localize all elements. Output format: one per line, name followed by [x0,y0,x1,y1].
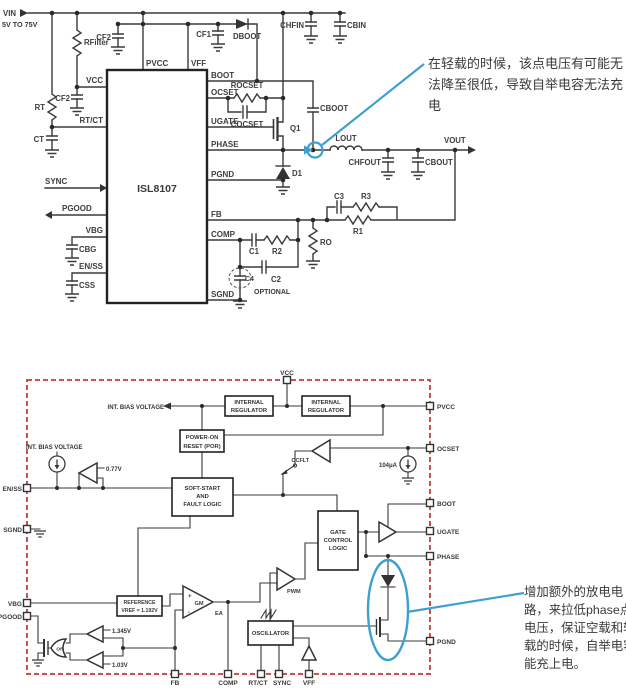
lower-threshold-label: 1.03V [112,663,128,669]
dboot-diode [236,19,248,29]
pin-pvcc: PVCC [146,59,168,68]
cbin-label: CBIN [347,21,366,30]
sawtooth-icon [261,610,276,618]
dboot-label: DBOOT [233,32,261,41]
ground-symbol [70,108,84,115]
ground-symbol [65,294,79,301]
soft-start-line3: FAULT LOGIC [183,502,222,508]
c1-cap [252,234,256,246]
blk-pin-boot: BOOT [437,501,456,508]
pin-square-pvcc [427,403,434,410]
int-bias-arrow [163,403,171,410]
r2-resistor [264,236,290,244]
c2-cap [262,261,266,273]
optional-label: OPTIONAL [254,289,291,296]
blk-pin-pgnd: PGND [437,639,456,646]
gate-control-line3: LOGIC [329,546,348,552]
chip-name: ISL8107 [137,183,177,195]
blk-pin-enss: EN/SS [2,486,22,493]
pin-square-pgnd [427,638,434,645]
discharge-diode [381,575,395,587]
bottom-note-line2: 路，来拉低phase点 [524,602,626,617]
top-note-line2: 法降至很低，导致自举电容无法充 [428,77,623,92]
bottom-note-line5: 能充上电。 [524,656,586,671]
cf2-vcc-cap [71,95,83,99]
enss-current-source [49,456,65,472]
pin-square-sgnd [24,526,31,533]
lout-label: LOUT [335,134,356,143]
por-line2: RESET (POR) [183,444,220,450]
top-note-line3: 电 [428,98,441,113]
pin-comp: COMP [211,230,236,239]
pin-square-ocset [427,445,434,452]
pin-vbg: VBG [86,226,103,235]
cocset-label: COCSET [231,120,264,129]
pin-phase: PHASE [211,140,239,149]
vin-label: VIN [3,9,16,18]
pin-square-fb [172,671,179,678]
internal-regulator-2-line2: REGULATOR [308,408,345,414]
cbout-cap [412,158,424,162]
blk-pin-pgood: PGOOD [0,614,22,621]
chfout-label: CHFOUT [349,158,382,167]
pin-square-boot [427,500,434,507]
chfin-label: CHFIN [280,21,304,30]
blk-pin-ugate: UGATE [437,529,460,536]
cbin-cap [334,22,346,26]
pin-pgood: PGOOD [62,204,92,213]
blk-pin-vff: VFF [303,680,315,687]
int-bias-top-label: INT. BIAS VOLTAGE [108,405,164,411]
bottom-note-line4: 载的时候，自举电容 [524,638,626,653]
ea-label: EA [215,611,223,617]
enable-threshold-label: 0.77V [106,467,122,473]
pin-fb: FB [211,210,222,219]
pin-square-vbg [24,600,31,607]
ct-label: CT [34,135,45,144]
blk-pin-sync: SYNC [273,680,291,687]
d1-diode [276,166,290,179]
ground-symbol [402,478,414,484]
blk-pin-rtct: RT/CT [248,680,267,687]
pin-vcc: VCC [86,76,103,85]
gm-label: GM [194,601,203,607]
internal-regulator-1-line2: REGULATOR [231,408,268,414]
gate-control-line2: CONTROL [324,538,353,544]
or-label: OR [56,647,64,653]
cbg-cap [66,245,78,249]
ground-symbol [111,47,125,54]
ea-minus-sign: - [188,610,190,616]
gate-control-line1: GATE [330,530,346,536]
application-circuit: ISL8107 VIN 5V TO 75V PVCC VFF VCC RT/CT… [0,0,626,368]
vin-range-label: 5V TO 75V [2,20,38,29]
top-annotation: 在轻载的时候，该点电压有可能无 法降至很低，导致自举电容无法充 电 [428,56,623,113]
pin-square-sync [276,671,283,678]
enable-comparator [79,463,97,483]
ground-symbol [211,44,225,51]
c3-cap [337,201,341,213]
blk-pin-ocset: OCSET [437,446,459,453]
cf1-cap [212,31,224,35]
ocset-current-source [400,456,416,472]
reference-line2: VREF = 1.192V [121,608,158,614]
discharge-mosfet [377,617,381,637]
ground-symbol [304,36,318,43]
switch-arrow [281,470,288,476]
ct-cap [46,136,58,140]
css-label: CSS [79,281,95,290]
ground-symbol [32,660,44,666]
css-cap [66,281,78,285]
c3-label: C3 [334,192,345,201]
pin-square-rtct [258,671,265,678]
chfin-cap [305,22,317,26]
cocset-cap [243,106,247,118]
pin-square-comp [225,671,232,678]
blk-pin-fb: FB [171,680,180,687]
callout-line-bottom [407,593,524,612]
q1-label: Q1 [290,124,301,133]
rocset-label: ROCSET [231,81,264,90]
cbg-label: CBG [79,245,96,254]
bottom-annotation: 增加额外的放电电 路，来拉低phase点 电压，保证空载和轻 载的时候，自举电容… [524,584,626,671]
pin-pgnd: PGND [211,170,234,179]
ea-plus-sign: + [188,594,192,600]
internal-regulator-2-line1: INTERNAL [311,400,341,406]
oscillator-label: OSCILLATOR [252,631,290,637]
c2-label: C2 [271,275,282,284]
vout-label: VOUT [444,136,466,145]
r1-label: R1 [353,227,364,236]
pin-boot: BOOT [211,71,234,80]
ground-symbol [381,172,395,179]
vin-arrow [20,9,28,17]
cf2-top-cap [112,34,124,38]
rfilter-resistor [73,30,81,56]
rt-label: RT [35,103,46,112]
chfout-cap [382,158,394,162]
r3-resistor [353,203,379,211]
pwm-label: PWM [287,589,301,595]
c4-label: C4 [245,276,254,283]
ocflt-comparator [312,440,330,462]
page: ISL8107 VIN 5V TO 75V PVCC VFF VCC RT/CT… [0,0,626,690]
pin-square-pgood [24,613,31,620]
por-line1: POWER-ON [186,435,219,441]
block-diagram-wires [31,384,427,671]
vff-buffer [302,646,316,660]
ocflt-label: OCFLT [291,458,309,464]
ground-symbol [306,261,320,268]
pwm-comparator [277,568,295,590]
ground-symbol [45,150,59,157]
blk-pin-sgnd: SGND [3,527,22,534]
lout-inductor [330,146,362,150]
cbout-label: CBOUT [425,158,453,167]
pin-square-vff [306,671,313,678]
pgood-arrow [45,211,52,219]
blk-pin-comp: COMP [218,680,238,687]
r2-label: R2 [272,247,283,256]
cf2-top-label: CF2 [96,33,111,42]
ground-symbol [34,531,46,537]
pin-sync: SYNC [45,177,67,186]
bottom-note-line1: 增加额外的放电电 [524,584,623,599]
pin-square-enss [24,485,31,492]
soft-start-line1: SOFT-START [185,486,221,492]
cf2-vcc-label: CF2 [55,94,70,103]
vout-arrow [468,146,476,154]
functional-block-diagram: INTERNAL REGULATOR INTERNAL REGULATOR PO… [0,368,626,690]
r1-resistor [345,216,371,224]
blk-pin-vcc: VCC [280,370,294,377]
pin-square-vcc [284,377,291,384]
pgood-mosfet [44,639,48,657]
undervoltage-comparator [87,652,103,668]
pin-square-ugate [427,528,434,535]
soft-start-line2: AND [196,494,209,500]
int-bias-left-label: INT. BIAS VOLTAGE [26,445,82,451]
upper-threshold-label: 1.345V [112,629,131,635]
ground-symbol [276,187,290,194]
ground-symbol [411,172,425,179]
pin-sgnd: SGND [211,290,234,299]
pin-square-phase [427,553,434,560]
ro-label: RO [320,238,332,247]
ro-resistor [309,228,317,254]
pin-rtct: RT/CT [79,116,103,125]
bottom-note-line3: 电压，保证空载和轻 [524,621,626,635]
pin-vff: VFF [191,59,206,68]
c1-label: C1 [249,247,260,256]
r3-label: R3 [361,192,372,201]
blk-pin-pvcc: PVCC [437,404,455,411]
internal-regulator-1-line1: INTERNAL [234,400,264,406]
reference-line1: REFERENCE [124,600,157,606]
d1-label: D1 [292,169,303,178]
cf1-label: CF1 [196,30,211,39]
ocset-current-label: 104μA [379,463,398,469]
cboot-label: CBOOT [320,104,348,113]
q1-mosfet [274,117,278,141]
cboot-cap [307,108,319,112]
ground-symbol [333,36,347,43]
blk-pin-vbg: VBG [8,601,22,608]
top-note-line1: 在轻载的时候，该点电压有可能无 [428,56,623,71]
blk-pin-phase: PHASE [437,554,460,561]
overvoltage-comparator [87,626,103,642]
ground-symbol [65,258,79,265]
pin-enss: EN/SS [79,262,104,271]
